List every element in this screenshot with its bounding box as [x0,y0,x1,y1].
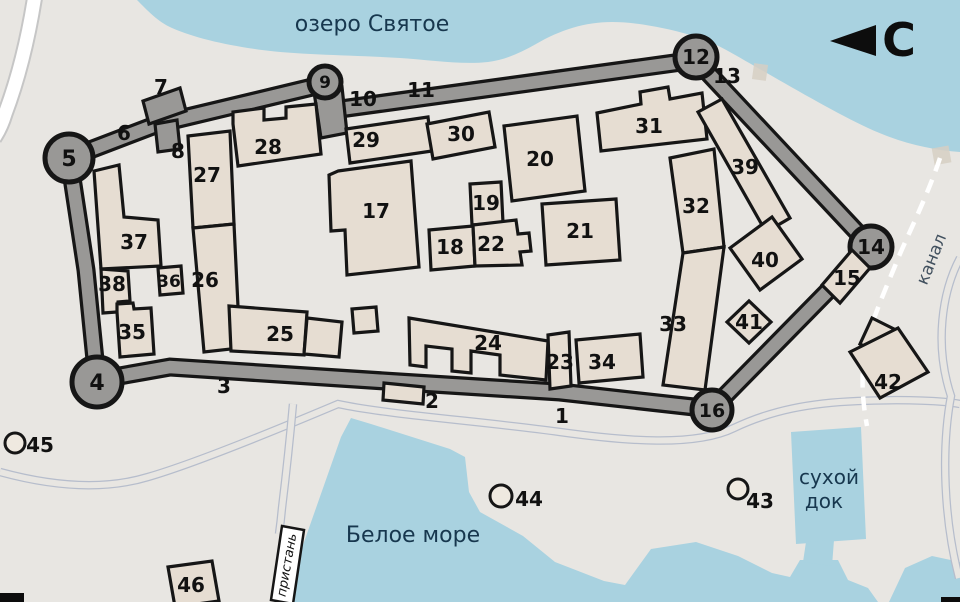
fortress-plan-map: С озеро Святое Белое море сухой док кана… [0,0,960,602]
label-22: 22 [477,232,505,256]
label-29: 29 [352,128,380,152]
label-34: 34 [588,350,616,374]
label-tower-16: 16 [699,400,725,422]
label-30: 30 [447,122,475,146]
building-unlabeled-square [352,307,378,333]
label-27: 27 [193,163,221,187]
label-28: 28 [254,135,282,159]
lake-label: озеро Святое [295,12,449,37]
label-42: 42 [874,370,902,394]
label-33: 33 [659,312,687,336]
dry-dock-label-2: док [805,489,843,513]
label-25: 25 [266,322,294,346]
label-21: 21 [566,219,594,243]
label-2: 2 [425,389,439,413]
building-2 [383,383,424,404]
label-8: 8 [171,139,185,163]
label-17: 17 [362,199,390,223]
label-32: 32 [682,194,710,218]
label-tower-4: 4 [89,371,104,396]
label-24: 24 [474,331,502,355]
label-7: 7 [154,75,168,99]
dry-dock-channel [803,540,834,566]
label-19: 19 [472,191,500,215]
dry-dock-label-1: сухой [799,465,859,489]
sea-label: Белое море [346,523,480,548]
building-25-annex [304,318,342,357]
label-36: 36 [157,272,181,292]
label-38: 38 [98,272,126,296]
label-41: 41 [735,310,763,334]
frame-mark-right [941,597,960,602]
label-6: 6 [117,121,131,145]
label-45: 45 [26,433,54,457]
label-31: 31 [635,114,663,138]
label-43: 43 [746,489,774,513]
label-20: 20 [526,147,554,171]
compass-north-label: С [882,13,916,67]
label-46: 46 [177,573,205,597]
label-tower-14: 14 [857,235,885,259]
label-tower-9: 9 [319,73,331,93]
label-15: 15 [833,266,861,290]
label-37: 37 [120,230,148,254]
poi-circle-43 [728,479,748,499]
label-3: 3 [217,374,231,398]
label-44: 44 [515,487,543,511]
poi-circle-45 [5,433,25,453]
shore-patch-2 [932,146,952,166]
label-1: 1 [555,404,569,428]
label-11: 11 [407,78,435,102]
shore-patch-1 [752,63,768,81]
label-tower-12: 12 [682,45,710,69]
label-23: 23 [546,350,574,374]
label-40: 40 [751,248,779,272]
label-18: 18 [436,235,464,259]
label-35: 35 [118,320,146,344]
label-39: 39 [731,155,759,179]
label-tower-5: 5 [61,147,76,172]
label-13: 13 [713,64,741,88]
poi-circle-44 [490,485,512,507]
label-10: 10 [349,87,377,111]
label-26: 26 [191,268,219,292]
frame-mark-left [0,593,24,602]
